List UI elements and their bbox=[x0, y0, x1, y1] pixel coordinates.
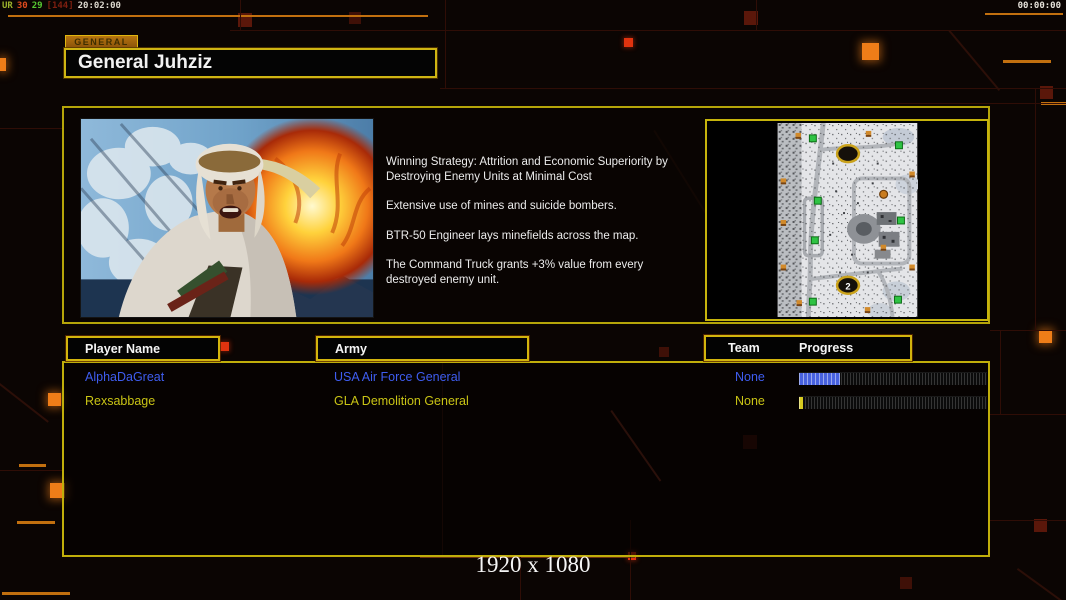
circuit-diagonal bbox=[0, 383, 49, 423]
progress-bar bbox=[799, 372, 987, 385]
circuit-square bbox=[220, 342, 229, 351]
strategy-text: Winning Strategy: Attrition and Economic… bbox=[386, 155, 708, 302]
circuit-square bbox=[0, 58, 6, 71]
header-player-name-label: Player Name bbox=[85, 342, 160, 356]
circuit-line bbox=[990, 330, 1066, 331]
circuit-line bbox=[240, 0, 241, 30]
general-name-box: General Juhziz bbox=[64, 48, 437, 78]
start-position-1 bbox=[837, 145, 859, 162]
circuit-line bbox=[985, 13, 1063, 15]
circuit-line bbox=[1000, 330, 1001, 415]
circuit-line bbox=[19, 464, 46, 467]
progress-fill bbox=[799, 373, 840, 385]
strategy-line: Extensive use of mines and suicide bombe… bbox=[386, 199, 708, 214]
header-army-label: Army bbox=[335, 342, 367, 356]
general-tab[interactable]: GENERAL bbox=[65, 35, 138, 48]
circuit-square bbox=[900, 577, 912, 589]
circuit-line bbox=[445, 0, 446, 88]
player-name: Rexsabbage bbox=[85, 394, 155, 408]
circuit-line bbox=[1003, 60, 1051, 63]
circuit-square bbox=[659, 347, 669, 357]
player-team: None bbox=[735, 370, 765, 384]
circuit-square bbox=[862, 43, 879, 60]
stats-overlay: UR3029[144]20:02:00 bbox=[2, 1, 125, 11]
strategy-line: BTR-50 Engineer lays minefields across t… bbox=[386, 229, 708, 244]
player-list-panel: AlphaDaGreat USA Air Force General None … bbox=[62, 361, 990, 557]
circuit-diagonal bbox=[948, 30, 1000, 91]
circuit-line bbox=[230, 30, 1066, 31]
loading-screen: UR3029[144]20:02:00 00:00:00 GENERAL Gen… bbox=[0, 0, 1066, 600]
circuit-line bbox=[440, 88, 1066, 89]
circuit-line bbox=[0, 128, 62, 129]
circuit-line bbox=[756, 0, 757, 30]
circuit-line bbox=[8, 15, 428, 17]
circuit-line bbox=[0, 470, 62, 471]
player-name: AlphaDaGreat bbox=[85, 370, 164, 384]
circuit-square bbox=[48, 393, 61, 406]
player-army: GLA Demolition General bbox=[334, 394, 469, 408]
player-team: None bbox=[735, 394, 765, 408]
stats-refresh: [144] bbox=[47, 1, 74, 11]
general-portrait bbox=[80, 118, 374, 318]
circuit-square bbox=[349, 12, 361, 24]
player-army: USA Air Force General bbox=[334, 370, 460, 384]
circuit-line bbox=[2, 592, 70, 595]
stats-fps: 30 bbox=[17, 1, 28, 11]
circuit-square bbox=[1039, 330, 1052, 343]
general-info-panel: Winning Strategy: Attrition and Economic… bbox=[62, 106, 990, 324]
circuit-line bbox=[840, 103, 1066, 104]
stats-label: UR bbox=[2, 1, 13, 11]
circuit-line bbox=[1035, 88, 1036, 330]
header-team-progress: Team Progress bbox=[704, 335, 912, 361]
stats-frametime: 29 bbox=[32, 1, 43, 11]
minimap-image: 2 bbox=[777, 123, 918, 317]
stats-clock: 20:02:00 bbox=[78, 1, 121, 11]
header-player-name: Player Name bbox=[66, 336, 220, 361]
strategy-line: Winning Strategy: Attrition and Economic… bbox=[386, 155, 708, 184]
progress-bar bbox=[799, 396, 987, 409]
progress-fill bbox=[799, 397, 803, 409]
circuit-line bbox=[990, 414, 1066, 415]
player-row: Rexsabbage GLA Demolition General None bbox=[64, 392, 988, 412]
general-name: General Juhziz bbox=[78, 52, 212, 74]
header-team-label: Team bbox=[728, 341, 760, 355]
start-position-label: 2 bbox=[845, 280, 850, 291]
map-preview: 2 bbox=[705, 119, 989, 321]
portrait-art bbox=[81, 119, 373, 317]
strategy-line: The Command Truck grants +3% value from … bbox=[386, 258, 708, 287]
circuit-line bbox=[17, 521, 55, 524]
header-army: Army bbox=[316, 336, 529, 361]
circuit-line bbox=[990, 520, 1066, 521]
circuit-square bbox=[624, 38, 633, 47]
header-progress-label: Progress bbox=[799, 341, 853, 355]
circuit-diagonal bbox=[610, 410, 661, 482]
map-resolution-label: 1920 x 1080 bbox=[0, 552, 1066, 578]
session-timer: 00:00:00 bbox=[1018, 1, 1061, 11]
player-row: AlphaDaGreat USA Air Force General None bbox=[64, 368, 988, 388]
